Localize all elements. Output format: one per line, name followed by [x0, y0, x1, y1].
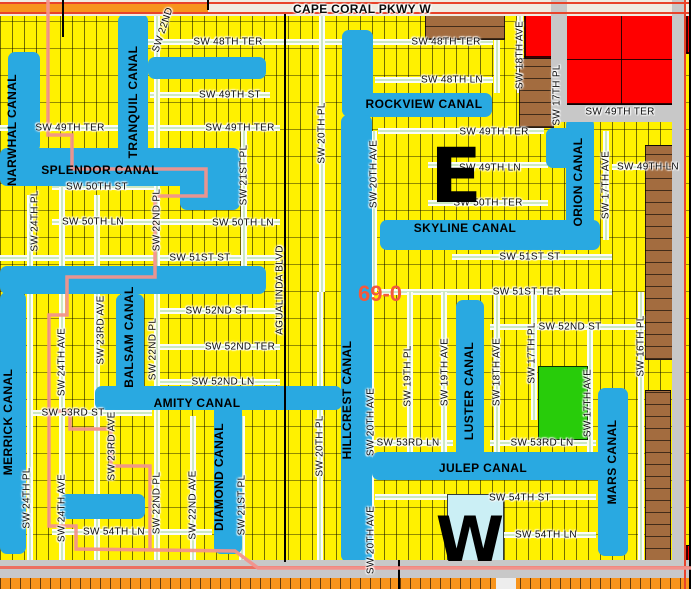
canal-label: HILLCREST CANAL	[340, 341, 354, 460]
street-label: SW 24TH AVE	[57, 328, 68, 396]
orange-highway-strip	[0, 578, 691, 589]
canal-label: ORION CANAL	[571, 137, 585, 226]
orange-highway-strip	[0, 4, 208, 12]
street-label: SW 48TH LN	[421, 75, 483, 86]
canal-label: MARS CANAL	[605, 420, 619, 505]
street-label: SW 17TH PL	[552, 64, 563, 125]
street-label: SW 24TH PL	[30, 190, 41, 251]
zone-letter-east: E	[430, 138, 482, 214]
street-label: SW 53RD ST	[41, 408, 104, 419]
road-black-line	[398, 560, 400, 589]
street-label: SW 51ST ST	[499, 252, 560, 263]
street-label: SW 50TH LN	[62, 217, 124, 228]
canal-water	[180, 148, 240, 210]
street-label: SW 51ST ST	[169, 253, 230, 264]
street-label: SW 22ND AVE	[188, 470, 199, 539]
street-label: SW 20TH AVE	[366, 388, 377, 456]
street-label: SW 52ND ST	[538, 322, 601, 333]
canal-label: DIAMOND CANAL	[212, 423, 226, 531]
street-label: SW 19TH AVE	[440, 338, 451, 406]
road-pink-line	[0, 566, 691, 569]
parcel-brown	[645, 390, 671, 562]
street-label: SW 54TH LN	[515, 530, 577, 541]
street-label: SW 52ND ST	[185, 306, 248, 317]
canal-label: SPLENDOR CANAL	[41, 163, 159, 177]
street-label: SW 49TH ST	[199, 90, 261, 101]
canal-label: TRANQUIL CANAL	[126, 46, 140, 159]
canal-label: MERRICK CANAL	[1, 369, 15, 476]
street-label: SW 23RD AVE	[107, 411, 118, 480]
parcel-red	[524, 12, 552, 58]
street-label: SW 17TH AVE	[583, 369, 594, 437]
street-label: SW 48TH TER	[411, 37, 480, 48]
canal-label: BALSAM CANAL	[122, 286, 136, 387]
street-label: SW 20TH AVE	[369, 140, 380, 208]
street-label: SW 52ND LN	[191, 377, 254, 388]
street-label: SW 20TH PL	[317, 102, 328, 163]
street-label: SW 22ND PL	[148, 318, 159, 380]
canal-label: NARWHAL CANAL	[5, 74, 19, 186]
parcel-green	[538, 366, 588, 440]
road-gap	[496, 578, 516, 589]
street-label: SW 48TH TER	[193, 37, 262, 48]
street-label: CAPE CORAL PKWY W	[293, 2, 431, 16]
canal-water	[60, 494, 145, 519]
street-label: SW 19TH PL	[403, 345, 414, 406]
canal-label: SKYLINE CANAL	[414, 221, 517, 235]
street-label: SW 18TH AVE	[515, 21, 526, 89]
parcel-red	[562, 14, 683, 105]
street-label: SW 50TH LN	[212, 218, 274, 229]
street-label: SW 54TH LN	[83, 527, 145, 538]
district-number-label: 69-0	[358, 281, 402, 307]
street-label: SW 21ST PL	[237, 475, 248, 536]
street-label: SW 17TH AVE	[601, 151, 612, 219]
parcel-brown	[645, 145, 673, 360]
street-label: SW 50TH ST	[66, 182, 128, 193]
road-black-line	[207, 0, 209, 10]
canal-label: LUSTER CANAL	[462, 342, 476, 440]
street-label: SW 20TH AVE	[366, 506, 377, 574]
street-label: SW 17TH PL	[527, 322, 538, 383]
canal-label: JULEP CANAL	[439, 461, 527, 475]
street-label: AGUALINDA BLVD	[275, 245, 286, 335]
street-label: SW 16TH PL	[636, 315, 647, 376]
street	[0, 255, 280, 261]
canal-water	[341, 115, 372, 562]
plat-map[interactable]: E W 69-0 CAPE CORAL PKWY WSW 48TH TERSW …	[0, 0, 691, 589]
canal-label: AMITY CANAL	[154, 396, 241, 410]
street-label: SW 54TH ST	[489, 493, 551, 504]
street-label: SW 24TH AVE	[57, 474, 68, 542]
street-label: SW 18TH AVE	[492, 338, 503, 406]
street-label: SW 24TH PL	[22, 467, 33, 528]
street-label: SW 49TH TER	[205, 123, 274, 134]
street-label: SW 51ST TER	[493, 287, 562, 298]
gray-road	[0, 560, 691, 578]
street-label: SW 49TH LN	[617, 162, 679, 173]
zone-letter-west: W	[436, 509, 504, 571]
road-red-line	[684, 0, 686, 589]
street-label: SW 53RD LN	[376, 438, 439, 449]
road-black-line	[62, 0, 64, 37]
street-label: SW 49TH TER	[585, 107, 654, 118]
street-label: SW 53RD LN	[510, 438, 573, 449]
street-label: SW 52ND TER	[205, 342, 275, 353]
canal-label: ROCKVIEW CANAL	[366, 97, 483, 111]
street-label: SW 49TH TER	[35, 123, 104, 134]
canal-water	[546, 128, 572, 168]
street-label: SW 23RD AVE	[96, 295, 107, 364]
street-label: SW 21ST PL	[239, 145, 250, 206]
street-label: SW 20TH PL	[315, 415, 326, 476]
street-label: SW 22ND PL	[152, 472, 163, 534]
street-label: SW 22ND PL	[152, 189, 163, 251]
canal-water	[148, 57, 266, 79]
